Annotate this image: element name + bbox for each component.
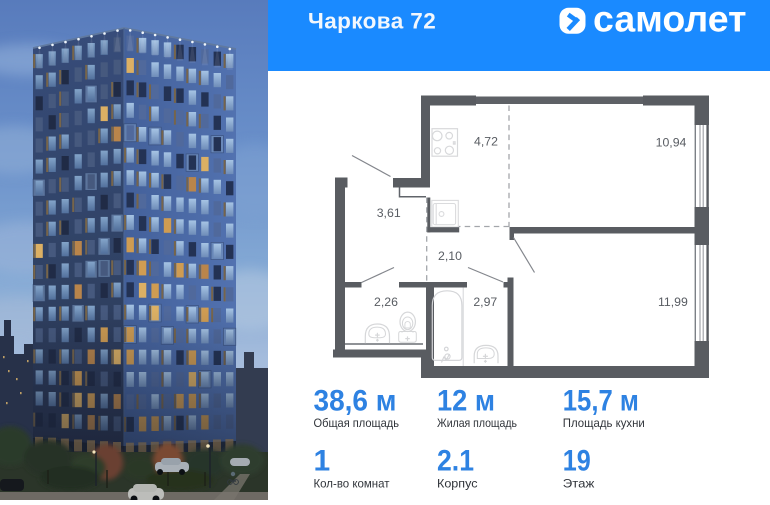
- svg-text:3,61: 3,61: [377, 206, 401, 220]
- svg-text:11,99: 11,99: [658, 295, 688, 309]
- svg-text:10,94: 10,94: [656, 135, 687, 149]
- svg-text:самолет: самолет: [593, 0, 746, 40]
- svg-text:Кол-во комнат: Кол-во комнат: [314, 476, 390, 490]
- svg-text:4,72: 4,72: [474, 134, 498, 148]
- svg-text:Площадь кухни: Площадь кухни: [563, 416, 645, 430]
- svg-text:Чаркова 72: Чаркова 72: [308, 9, 436, 34]
- svg-text:2,97: 2,97: [473, 295, 497, 309]
- svg-text:38,6 м: 38,6 м: [314, 385, 397, 418]
- svg-text:Этаж: Этаж: [563, 476, 595, 490]
- svg-text:2,10: 2,10: [438, 249, 462, 263]
- svg-text:12 м: 12 м: [437, 385, 495, 418]
- svg-text:Общая площадь: Общая площадь: [314, 416, 400, 430]
- svg-text:2,26: 2,26: [374, 295, 398, 309]
- svg-text:19: 19: [563, 445, 591, 478]
- svg-text:15,7 м: 15,7 м: [563, 385, 639, 418]
- svg-text:2.1: 2.1: [437, 445, 474, 478]
- svg-text:Жилая площадь: Жилая площадь: [437, 416, 517, 430]
- svg-text:1: 1: [314, 445, 331, 478]
- svg-text:Корпус: Корпус: [437, 476, 478, 490]
